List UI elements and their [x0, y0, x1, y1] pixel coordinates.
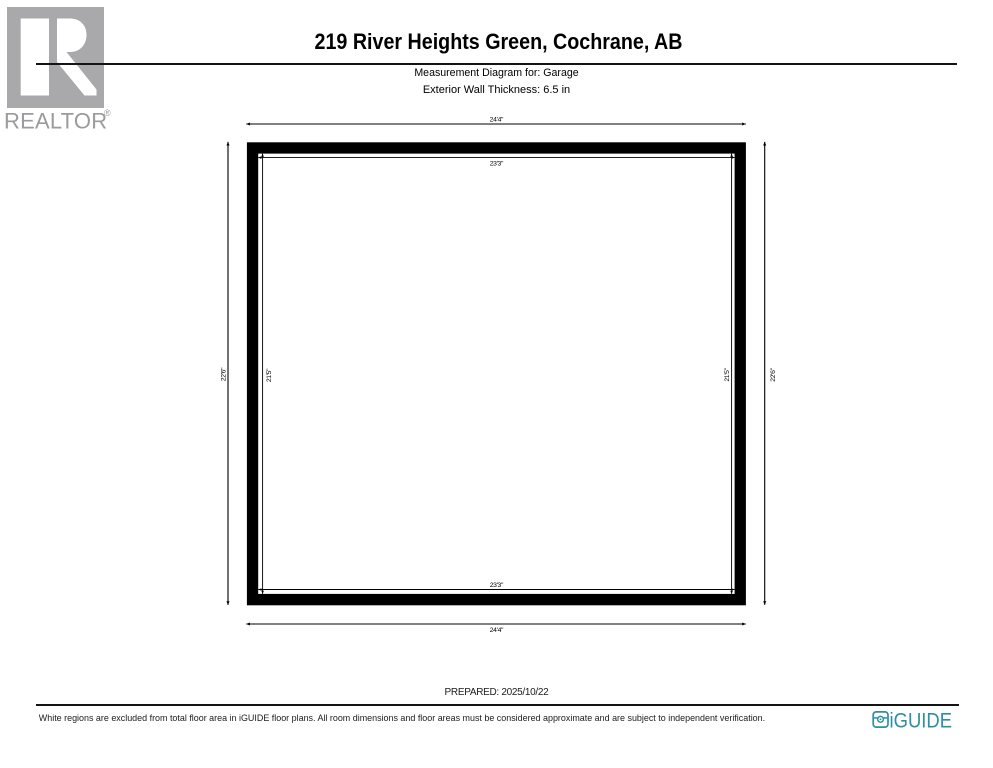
- svg-text:24'4": 24'4": [490, 117, 504, 124]
- svg-text:22'6": 22'6": [221, 367, 228, 381]
- svg-text:23'3": 23'3": [490, 582, 504, 589]
- svg-text:24'4": 24'4": [490, 627, 504, 634]
- svg-text:21'5": 21'5": [266, 368, 273, 382]
- svg-text:21'5": 21'5": [724, 367, 731, 381]
- svg-text:22'6": 22'6": [770, 367, 777, 381]
- svg-text:iGUIDE: iGUIDE: [890, 709, 953, 733]
- svg-text:23'3": 23'3": [490, 161, 504, 168]
